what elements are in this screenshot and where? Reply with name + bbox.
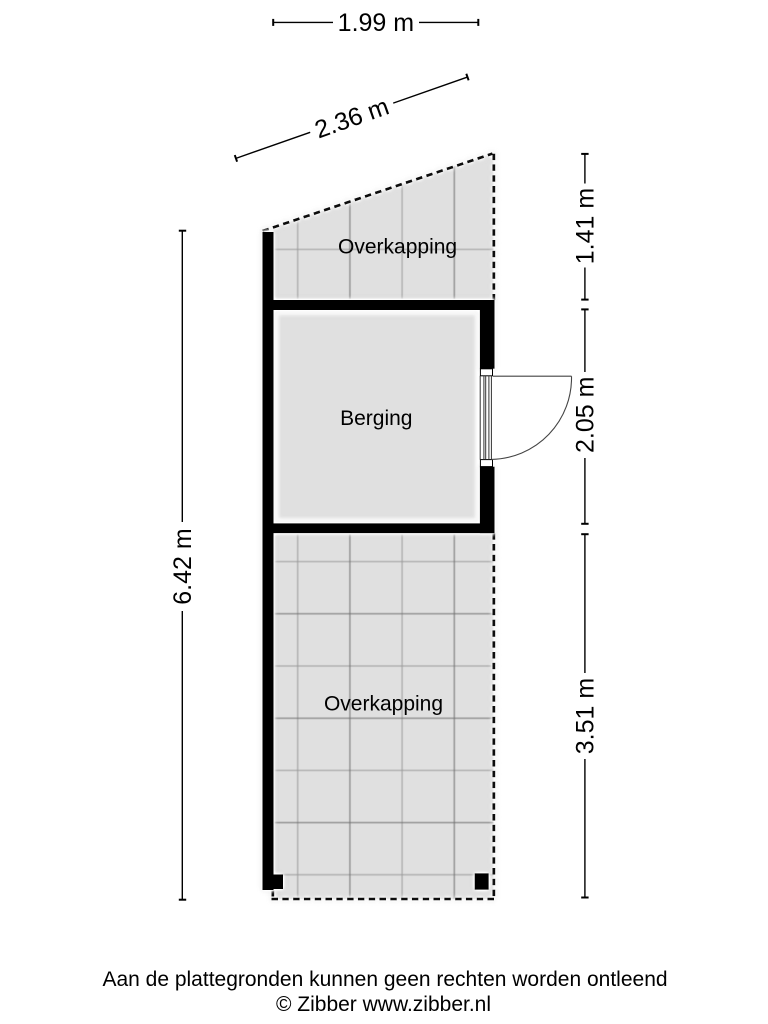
- svg-text:1.99 m: 1.99 m: [338, 9, 414, 37]
- svg-text:3.51 m: 3.51 m: [572, 678, 600, 754]
- svg-text:Berging: Berging: [340, 407, 412, 430]
- svg-text:© Zibber www.zibber.nl: © Zibber www.zibber.nl: [276, 993, 491, 1016]
- svg-text:2.05 m: 2.05 m: [572, 377, 600, 453]
- svg-text:Overkapping: Overkapping: [338, 236, 457, 259]
- svg-text:6.42 m: 6.42 m: [169, 528, 197, 604]
- svg-text:1.41 m: 1.41 m: [572, 188, 600, 264]
- svg-text:Overkapping: Overkapping: [324, 693, 443, 716]
- svg-text:Aan de plattegronden kunnen ge: Aan de plattegronden kunnen geen rechten…: [102, 968, 667, 991]
